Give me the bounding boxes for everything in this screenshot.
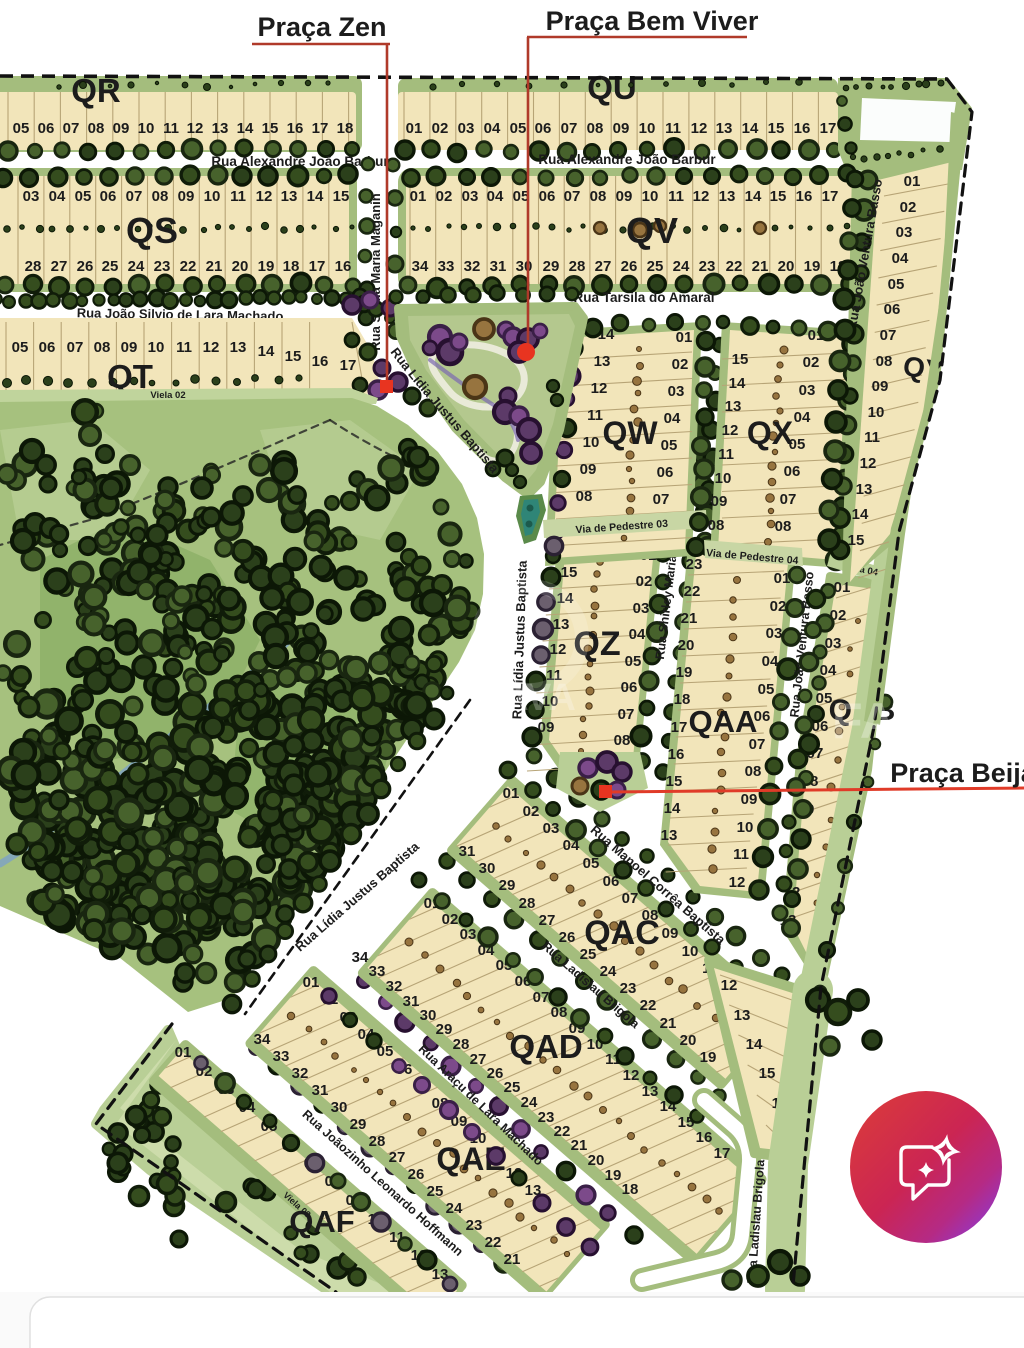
svg-text:10: 10 (204, 188, 221, 205)
svg-text:06: 06 (657, 464, 674, 481)
svg-text:09: 09 (113, 120, 130, 137)
svg-text:16: 16 (312, 353, 329, 370)
svg-text:13: 13 (594, 353, 611, 370)
svg-text:QX: QX (747, 415, 794, 451)
svg-text:11: 11 (733, 846, 749, 863)
svg-text:13: 13 (716, 120, 733, 137)
svg-text:07: 07 (653, 491, 670, 508)
svg-text:08: 08 (152, 188, 169, 205)
svg-text:29: 29 (436, 1021, 453, 1038)
svg-text:20: 20 (678, 637, 695, 654)
svg-text:07: 07 (618, 706, 635, 723)
svg-text:12: 12 (187, 120, 204, 137)
svg-text:12: 12 (691, 120, 708, 137)
svg-text:23: 23 (686, 556, 703, 573)
svg-text:03: 03 (896, 224, 913, 241)
svg-text:34: 34 (352, 949, 369, 966)
svg-text:03: 03 (633, 600, 650, 617)
svg-text:28: 28 (369, 1133, 386, 1150)
svg-text:QAC: QAC (584, 914, 660, 952)
svg-text:02: 02 (636, 573, 653, 590)
svg-text:14: 14 (664, 800, 681, 817)
svg-text:03: 03 (23, 188, 40, 205)
svg-text:07: 07 (67, 339, 84, 356)
svg-text:09: 09 (613, 120, 630, 137)
svg-text:13: 13 (281, 188, 298, 205)
svg-text:15: 15 (561, 564, 578, 581)
svg-text:08: 08 (88, 120, 105, 137)
svg-text:08: 08 (590, 188, 607, 205)
svg-text:09: 09 (741, 791, 758, 808)
svg-text:09: 09 (178, 188, 195, 205)
svg-text:13: 13 (719, 188, 736, 205)
svg-text:06: 06 (38, 120, 55, 137)
svg-text:Praça Zen: Praça Zen (257, 12, 386, 42)
svg-text:06: 06 (100, 188, 117, 205)
svg-text:26: 26 (559, 929, 576, 946)
svg-text:03: 03 (458, 120, 475, 137)
svg-text:06: 06 (535, 120, 552, 137)
svg-text:17: 17 (714, 1145, 731, 1162)
svg-text:02: 02 (523, 803, 540, 820)
svg-text:13: 13 (642, 1083, 659, 1100)
svg-text:10: 10 (148, 339, 165, 356)
svg-text:Viela 02: Viela 02 (150, 390, 185, 401)
svg-text:25: 25 (647, 258, 664, 275)
svg-text:24: 24 (446, 1200, 463, 1217)
svg-text:33: 33 (438, 258, 455, 275)
svg-text:05: 05 (661, 437, 678, 454)
svg-text:14: 14 (307, 188, 324, 205)
svg-text:31: 31 (459, 843, 476, 860)
svg-text:22: 22 (684, 583, 701, 600)
svg-text:27: 27 (470, 1051, 487, 1068)
svg-text:Rua Sonia Maria Maganin: Rua Sonia Maria Maganin (368, 193, 383, 351)
svg-text:10: 10 (639, 120, 656, 137)
svg-text:QS: QS (126, 210, 178, 251)
svg-text:12: 12 (203, 339, 220, 356)
svg-text:22: 22 (485, 1234, 502, 1251)
svg-text:02: 02 (442, 911, 459, 928)
svg-text:30: 30 (516, 258, 533, 275)
svg-text:09: 09 (662, 925, 679, 942)
svg-text:11: 11 (668, 188, 684, 205)
svg-text:15: 15 (770, 188, 787, 205)
svg-text:23: 23 (538, 1109, 555, 1126)
svg-text:Praça Beija: Praça Beija (890, 758, 1024, 788)
svg-text:07: 07 (561, 120, 578, 137)
svg-text:01: 01 (410, 188, 427, 205)
svg-text:05: 05 (888, 276, 905, 293)
svg-text:17: 17 (340, 357, 357, 374)
svg-text:08: 08 (745, 763, 762, 780)
svg-text:22: 22 (726, 258, 743, 275)
svg-text:15: 15 (285, 348, 302, 365)
svg-text:18: 18 (622, 1181, 639, 1198)
svg-text:09: 09 (616, 188, 633, 205)
svg-text:22: 22 (640, 997, 657, 1014)
svg-text:03: 03 (462, 188, 479, 205)
svg-text:10: 10 (715, 470, 732, 487)
svg-text:08: 08 (94, 339, 111, 356)
svg-text:06: 06 (621, 679, 638, 696)
svg-text:30: 30 (479, 860, 496, 877)
svg-text:20: 20 (232, 258, 249, 275)
svg-text:QU: QU (587, 69, 637, 106)
svg-text:03: 03 (543, 820, 560, 837)
svg-text:14: 14 (745, 188, 762, 205)
svg-text:26: 26 (621, 258, 638, 275)
svg-text:28: 28 (519, 895, 536, 912)
svg-text:17: 17 (309, 258, 326, 275)
svg-text:QAA: QAA (689, 704, 758, 739)
svg-text:19: 19 (700, 1049, 717, 1066)
svg-text:11: 11 (864, 429, 880, 446)
svg-text:22: 22 (554, 1123, 571, 1140)
svg-text:21: 21 (660, 1015, 677, 1032)
svg-text:07: 07 (780, 491, 797, 508)
svg-text:12: 12 (550, 641, 567, 658)
svg-text:11: 11 (230, 188, 246, 205)
svg-text:12: 12 (722, 422, 739, 439)
svg-text:24: 24 (600, 963, 617, 980)
svg-text:26: 26 (408, 1166, 425, 1183)
svg-text:27: 27 (389, 1149, 406, 1166)
svg-text:30: 30 (331, 1099, 348, 1116)
svg-text:12: 12 (860, 455, 877, 472)
svg-text:21: 21 (206, 258, 223, 275)
svg-text:01: 01 (904, 173, 921, 190)
svg-text:28: 28 (25, 258, 42, 275)
svg-text:17: 17 (312, 120, 329, 137)
svg-text:25: 25 (102, 258, 119, 275)
svg-text:06: 06 (539, 188, 556, 205)
svg-text:21: 21 (571, 1137, 588, 1154)
svg-text:04: 04 (487, 188, 504, 205)
svg-text:29: 29 (350, 1116, 367, 1133)
svg-text:09: 09 (580, 461, 597, 478)
svg-text:07: 07 (63, 120, 80, 137)
svg-text:07: 07 (564, 188, 581, 205)
svg-text:11: 11 (718, 446, 734, 463)
svg-text:33: 33 (369, 963, 386, 980)
svg-text:20: 20 (778, 258, 795, 275)
svg-text:29: 29 (543, 258, 560, 275)
svg-text:21: 21 (752, 258, 769, 275)
svg-text:12: 12 (591, 380, 608, 397)
svg-text:13: 13 (856, 481, 873, 498)
svg-text:17: 17 (671, 719, 688, 736)
svg-text:01: 01 (774, 570, 791, 587)
svg-text:27: 27 (595, 258, 612, 275)
svg-text:16: 16 (287, 120, 304, 137)
svg-text:11: 11 (665, 120, 681, 137)
svg-text:15: 15 (732, 351, 749, 368)
svg-text:05: 05 (75, 188, 92, 205)
svg-text:05: 05 (758, 681, 775, 698)
svg-text:01: 01 (503, 785, 520, 802)
svg-text:14: 14 (729, 375, 746, 392)
svg-text:28: 28 (453, 1036, 470, 1053)
svg-text:06: 06 (884, 301, 901, 318)
svg-text:10: 10 (642, 188, 659, 205)
svg-text:10: 10 (737, 819, 754, 836)
svg-text:10: 10 (138, 120, 155, 137)
svg-text:08: 08 (775, 518, 792, 535)
svg-text:13: 13 (230, 339, 247, 356)
svg-text:23: 23 (620, 980, 637, 997)
svg-text:18: 18 (337, 120, 354, 137)
svg-text:12: 12 (721, 977, 738, 994)
svg-text:14: 14 (746, 1036, 763, 1053)
svg-text:04: 04 (892, 250, 909, 267)
svg-text:32: 32 (464, 258, 481, 275)
svg-text:01: 01 (406, 120, 423, 137)
svg-text:25: 25 (427, 1183, 444, 1200)
svg-text:11: 11 (176, 339, 192, 356)
svg-text:13: 13 (661, 827, 678, 844)
svg-text:02: 02 (900, 199, 917, 216)
svg-text:02: 02 (432, 120, 449, 137)
svg-text:02: 02 (672, 356, 689, 373)
svg-text:02: 02 (770, 598, 787, 615)
svg-text:12: 12 (729, 874, 746, 891)
svg-text:04: 04 (49, 188, 66, 205)
svg-text:09: 09 (121, 339, 138, 356)
svg-text:01: 01 (175, 1044, 192, 1061)
svg-text:05: 05 (510, 120, 527, 137)
svg-text:26: 26 (77, 258, 94, 275)
svg-text:03: 03 (799, 382, 816, 399)
svg-text:06: 06 (784, 463, 801, 480)
svg-text:16: 16 (668, 746, 685, 763)
svg-text:Praça Bem Viver: Praça Bem Viver (546, 6, 759, 36)
svg-text:23: 23 (466, 1217, 483, 1234)
svg-text:04: 04 (794, 409, 811, 426)
svg-text:08: 08 (708, 517, 725, 534)
svg-text:FAVA: FAVA (832, 693, 958, 749)
svg-text:20: 20 (588, 1152, 605, 1169)
svg-text:16: 16 (335, 258, 352, 275)
svg-text:Rua Alexandre João Barbur: Rua Alexandre João Barbur (538, 152, 716, 167)
svg-text:22: 22 (180, 258, 197, 275)
svg-text:10: 10 (682, 943, 699, 960)
svg-text:16: 16 (796, 188, 813, 205)
svg-text:15: 15 (848, 532, 865, 549)
svg-text:15: 15 (759, 1065, 776, 1082)
svg-text:13: 13 (725, 398, 742, 415)
svg-text:08: 08 (876, 353, 893, 370)
svg-text:07: 07 (533, 989, 550, 1006)
svg-text:17: 17 (822, 188, 839, 205)
svg-text:19: 19 (258, 258, 275, 275)
svg-text:27: 27 (51, 258, 68, 275)
svg-text:27: 27 (539, 912, 556, 929)
svg-text:31: 31 (403, 993, 420, 1010)
svg-text:16: 16 (696, 1129, 713, 1146)
svg-text:02: 02 (803, 354, 820, 371)
svg-text:24: 24 (128, 258, 145, 275)
svg-text:32: 32 (292, 1065, 309, 1082)
svg-text:01: 01 (303, 974, 320, 991)
svg-text:19: 19 (804, 258, 821, 275)
svg-text:QW: QW (602, 415, 658, 451)
svg-text:16: 16 (794, 120, 811, 137)
svg-text:33: 33 (273, 1048, 290, 1065)
svg-text:10: 10 (583, 434, 600, 451)
svg-text:24: 24 (521, 1094, 538, 1111)
svg-text:08: 08 (587, 120, 604, 137)
svg-text:04: 04 (664, 410, 681, 427)
svg-text:12: 12 (623, 1067, 640, 1084)
svg-text:17: 17 (820, 120, 837, 137)
svg-text:26: 26 (487, 1065, 504, 1082)
svg-text:03: 03 (668, 383, 685, 400)
svg-text:31: 31 (312, 1082, 329, 1099)
svg-text:15: 15 (333, 188, 350, 205)
svg-text:07: 07 (880, 327, 897, 344)
svg-text:08: 08 (614, 732, 631, 749)
svg-text:02: 02 (436, 188, 453, 205)
svg-text:32: 32 (386, 978, 403, 995)
svg-text:10: 10 (868, 404, 885, 421)
svg-text:07: 07 (622, 890, 639, 907)
svg-text:06: 06 (39, 339, 56, 356)
svg-text:14: 14 (742, 120, 759, 137)
svg-text:25: 25 (504, 1079, 521, 1096)
svg-text:15: 15 (262, 120, 279, 137)
svg-text:30: 30 (420, 1007, 437, 1024)
svg-text:11: 11 (587, 407, 603, 424)
svg-text:13: 13 (212, 120, 229, 137)
svg-text:05: 05 (625, 653, 642, 670)
svg-text:03: 03 (460, 926, 477, 943)
svg-text:31: 31 (490, 258, 507, 275)
svg-text:19: 19 (676, 664, 693, 681)
svg-text:14: 14 (852, 506, 869, 523)
svg-text:01: 01 (676, 329, 693, 346)
svg-text:21: 21 (504, 1251, 521, 1268)
svg-text:09: 09 (872, 378, 889, 395)
svg-text:FAVA: FAVA (480, 677, 576, 719)
svg-text:15: 15 (666, 773, 683, 790)
svg-text:13: 13 (734, 1007, 751, 1024)
svg-text:13: 13 (553, 616, 570, 633)
svg-text:03: 03 (766, 625, 783, 642)
svg-text:21: 21 (681, 610, 698, 627)
svg-text:Rua Tarsila do Amaral: Rua Tarsila do Amaral (573, 290, 714, 305)
svg-text:15: 15 (768, 120, 785, 137)
svg-text:34: 34 (254, 1031, 271, 1048)
svg-text:12: 12 (693, 188, 710, 205)
svg-text:24: 24 (673, 258, 690, 275)
svg-text:14: 14 (237, 120, 254, 137)
svg-text:11: 11 (163, 120, 179, 137)
svg-text:04: 04 (484, 120, 501, 137)
svg-text:01: 01 (834, 579, 851, 596)
svg-text:28: 28 (569, 258, 586, 275)
svg-text:05: 05 (12, 339, 29, 356)
svg-text:QV: QV (626, 210, 678, 251)
svg-text:19: 19 (605, 1167, 622, 1184)
svg-text:09: 09 (711, 493, 728, 510)
svg-text:05: 05 (13, 120, 30, 137)
svg-text:23: 23 (699, 258, 716, 275)
svg-text:04: 04 (629, 626, 646, 643)
svg-text:34: 34 (412, 258, 429, 275)
svg-text:29: 29 (499, 877, 516, 894)
svg-text:12: 12 (256, 188, 273, 205)
svg-text:07: 07 (126, 188, 143, 205)
svg-text:05: 05 (583, 855, 600, 872)
svg-text:QAD: QAD (509, 1028, 582, 1065)
svg-text:14: 14 (258, 343, 275, 360)
svg-text:20: 20 (680, 1032, 697, 1049)
svg-text:08: 08 (576, 488, 593, 505)
svg-text:23: 23 (154, 258, 171, 275)
